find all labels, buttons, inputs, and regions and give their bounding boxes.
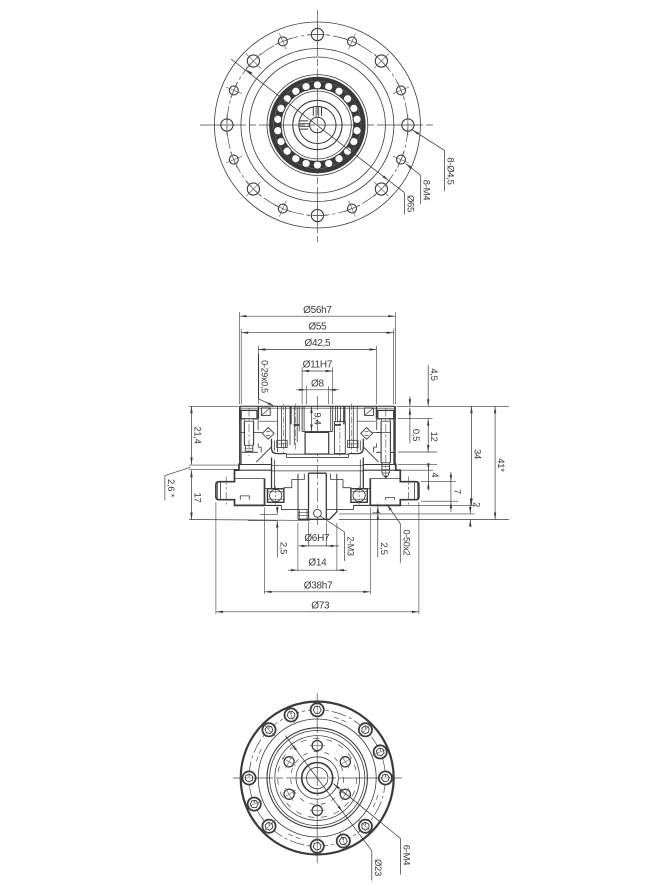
svg-text:Ø8: Ø8 [311, 378, 324, 389]
svg-text:Ø23: Ø23 [372, 859, 383, 876]
svg-text:Ø6H7: Ø6H7 [304, 533, 330, 544]
svg-text:8-Ø4,5: 8-Ø4,5 [445, 157, 456, 184]
svg-text:Ø11H7: Ø11H7 [303, 360, 333, 371]
svg-text:8-M4: 8-M4 [421, 180, 432, 200]
svg-text:Ø65: Ø65 [404, 195, 415, 212]
svg-text:2,5: 2,5 [277, 542, 288, 554]
svg-text:41*: 41* [495, 458, 506, 472]
svg-text:Ø73: Ø73 [311, 600, 330, 611]
svg-text:4: 4 [429, 472, 440, 477]
svg-text:2-M3: 2-M3 [346, 536, 356, 556]
svg-text:Ø42,5: Ø42,5 [305, 338, 331, 349]
svg-text:0,5: 0,5 [410, 429, 421, 441]
svg-text:9,4: 9,4 [312, 412, 323, 424]
svg-text:2,6 *: 2,6 * [165, 479, 176, 498]
svg-text:7: 7 [451, 489, 462, 494]
svg-text:0-29x0,5: 0-29x0,5 [260, 360, 270, 393]
svg-text:2,5: 2,5 [378, 542, 389, 554]
svg-text:Ø56h7: Ø56h7 [303, 305, 332, 316]
svg-text:0-50x2: 0-50x2 [401, 530, 411, 556]
svg-text:21,4: 21,4 [192, 426, 203, 443]
svg-text:Ø38h7: Ø38h7 [304, 580, 333, 591]
svg-text:4,5: 4,5 [428, 368, 439, 380]
svg-text:Ø14: Ø14 [308, 557, 327, 568]
svg-text:17: 17 [192, 493, 203, 503]
svg-text:12: 12 [428, 432, 439, 442]
svg-text:Ø55: Ø55 [308, 321, 327, 332]
svg-text:6-M4: 6-M4 [401, 845, 412, 865]
svg-text:34: 34 [472, 449, 483, 459]
